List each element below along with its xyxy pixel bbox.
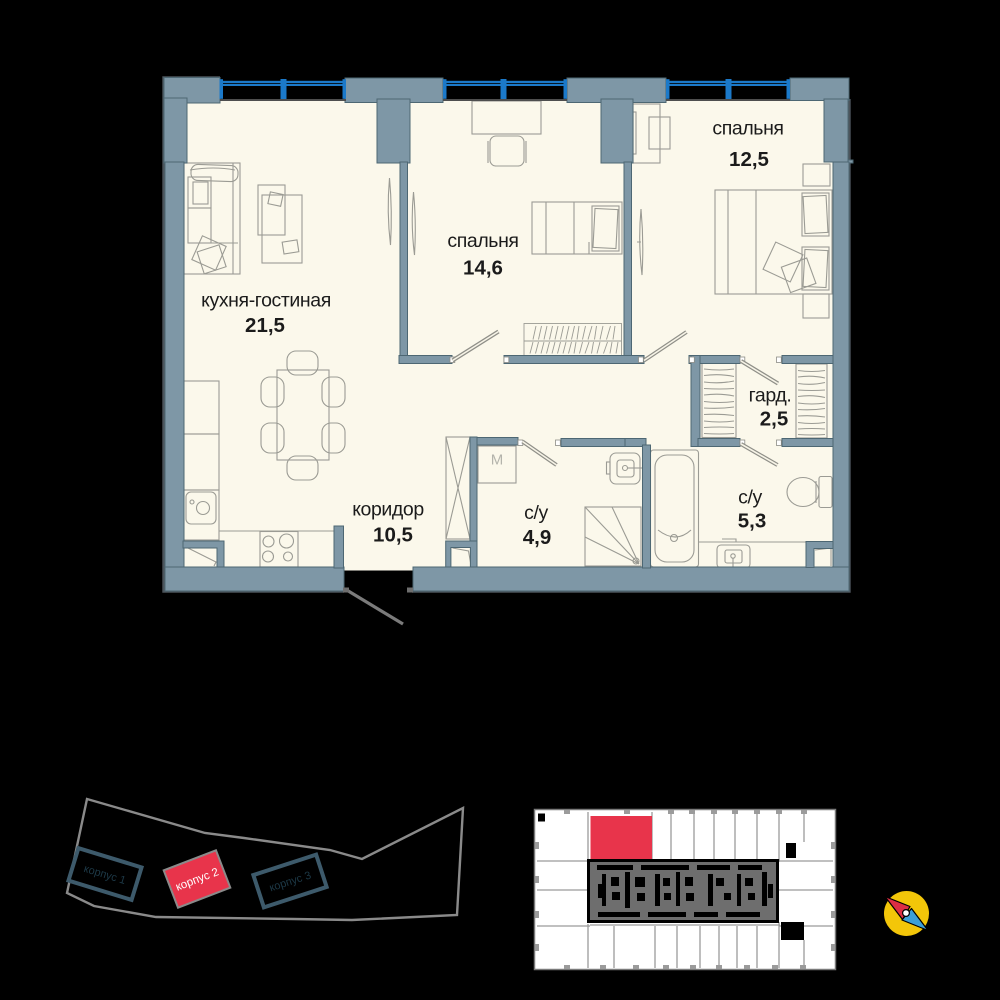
svg-text:10,5: 10,5 bbox=[373, 524, 413, 547]
svg-text:кухня-гостиная: кухня-гостиная bbox=[201, 290, 331, 312]
svg-text:спальня: спальня bbox=[712, 118, 783, 140]
svg-text:12,5: 12,5 bbox=[729, 148, 769, 171]
svg-text:21,5: 21,5 bbox=[245, 314, 285, 337]
svg-text:с/у: с/у bbox=[524, 502, 548, 524]
svg-text:2,5: 2,5 bbox=[760, 408, 789, 431]
svg-text:спальня: спальня bbox=[447, 230, 518, 252]
svg-text:М: М bbox=[491, 452, 504, 469]
svg-text:5,3: 5,3 bbox=[738, 510, 767, 533]
svg-text:14,6: 14,6 bbox=[463, 257, 503, 280]
svg-text:4,9: 4,9 bbox=[523, 526, 552, 549]
svg-text:с/у: с/у bbox=[738, 487, 762, 509]
svg-text:коридор: коридор bbox=[352, 499, 424, 521]
svg-text:гард.: гард. bbox=[749, 385, 792, 407]
